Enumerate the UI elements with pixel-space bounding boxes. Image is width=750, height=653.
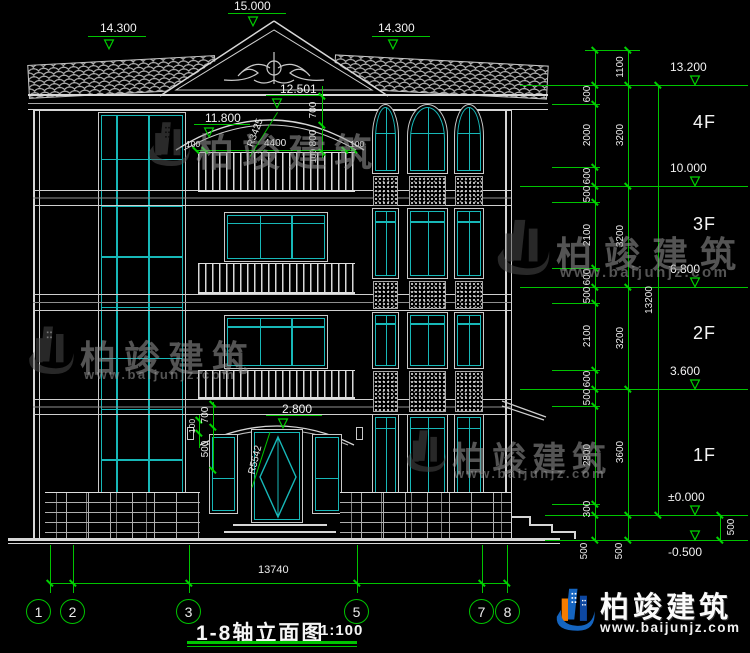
dim-line <box>50 583 508 584</box>
watermark-1: 柏竣建筑 <box>146 116 192 170</box>
watermark-url: www.baijunjz.com <box>560 264 729 281</box>
title-underline-thin <box>187 646 357 647</box>
drawing-scale: 1:100 <box>320 622 363 639</box>
axis-bubble-8: 8 <box>495 599 520 624</box>
watermark-3: 柏竣建筑 www.baijunjz.com <box>26 321 76 377</box>
watermark-logo-icon <box>146 116 192 170</box>
watermark-text: 柏竣建筑 <box>196 122 380 177</box>
bottom-dimension-system: 13740 1 2 3 5 7 8 1-8轴立面图 1:100 <box>0 0 750 653</box>
axis-bubble-1: 1 <box>26 599 51 624</box>
axis-bubble-7: 7 <box>469 599 494 624</box>
footer-brand-url: www.baijunjz.com <box>600 620 741 635</box>
watermark-logo-icon <box>26 321 76 377</box>
watermark-url: www.baijunjz.com <box>84 367 236 382</box>
watermark-4: 柏竣建筑 www.baijunjz.com <box>404 426 448 474</box>
footer-brand: 柏竣建筑 www.baijunjz.com <box>554 578 596 640</box>
dim-value: 13740 <box>258 565 289 576</box>
watermark-2: 柏竣建筑 www.baijunjz.com <box>494 214 552 278</box>
footer-logo-icon <box>554 578 596 640</box>
watermark-logo-icon <box>494 214 552 278</box>
watermark-url: www.baijunjz.com <box>454 466 606 481</box>
title-underline <box>187 641 357 644</box>
axis-bubble-5: 5 <box>344 599 369 624</box>
cad-elevation-drawing: 14.300 ▽ 15.000 ▽ 14.300 ▽ 12.501 ▽ 11.8… <box>0 0 750 653</box>
axis-bubble-2: 2 <box>60 599 85 624</box>
watermark-logo-icon <box>404 426 448 474</box>
